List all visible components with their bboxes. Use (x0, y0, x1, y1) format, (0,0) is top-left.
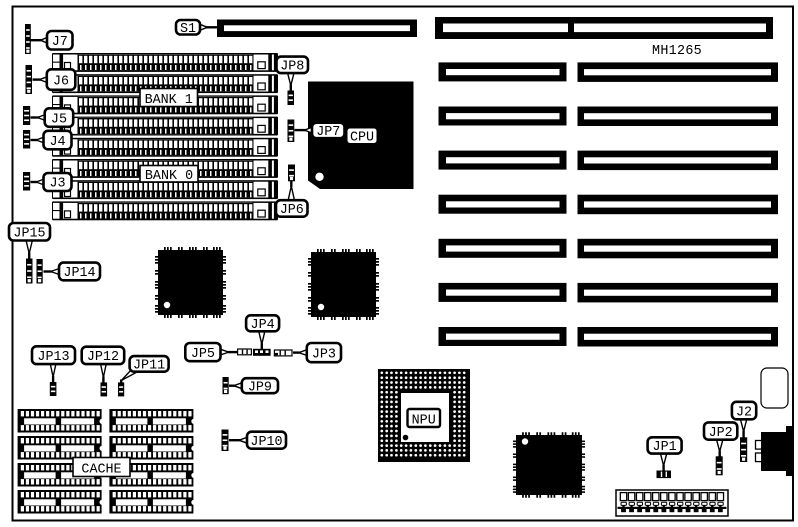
svg-text:JP7: JP7 (316, 125, 340, 140)
svg-text:S1: S1 (180, 22, 196, 37)
svg-text:J6: J6 (53, 74, 69, 89)
svg-text:CPU: CPU (350, 131, 374, 146)
svg-text:CACHE: CACHE (81, 462, 121, 477)
svg-text:J7: J7 (52, 35, 68, 50)
svg-text:JP1: JP1 (653, 440, 677, 455)
svg-text:JP4: JP4 (251, 318, 275, 333)
svg-text:JP11: JP11 (133, 359, 165, 374)
svg-text:JP14: JP14 (63, 266, 95, 281)
svg-text:NPU: NPU (412, 414, 436, 429)
svg-text:J3: J3 (49, 177, 65, 192)
svg-text:JP13: JP13 (37, 350, 69, 365)
svg-text:JP10: JP10 (250, 435, 282, 450)
svg-text:BANK 0: BANK 0 (145, 169, 193, 184)
svg-text:JP15: JP15 (13, 226, 45, 241)
svg-text:JP6: JP6 (280, 203, 304, 218)
svg-text:JP2: JP2 (709, 426, 733, 441)
svg-text:MH1265: MH1265 (652, 44, 702, 59)
svg-text:J4: J4 (49, 135, 65, 150)
svg-text:JP9: JP9 (248, 380, 272, 395)
svg-text:J2: J2 (736, 405, 752, 420)
svg-text:JP5: JP5 (191, 347, 215, 362)
svg-text:JP8: JP8 (280, 60, 304, 75)
svg-text:J5: J5 (51, 112, 67, 127)
svg-text:JP3: JP3 (312, 347, 336, 362)
svg-text:JP12: JP12 (87, 350, 119, 365)
svg-text:BANK 1: BANK 1 (145, 93, 193, 108)
